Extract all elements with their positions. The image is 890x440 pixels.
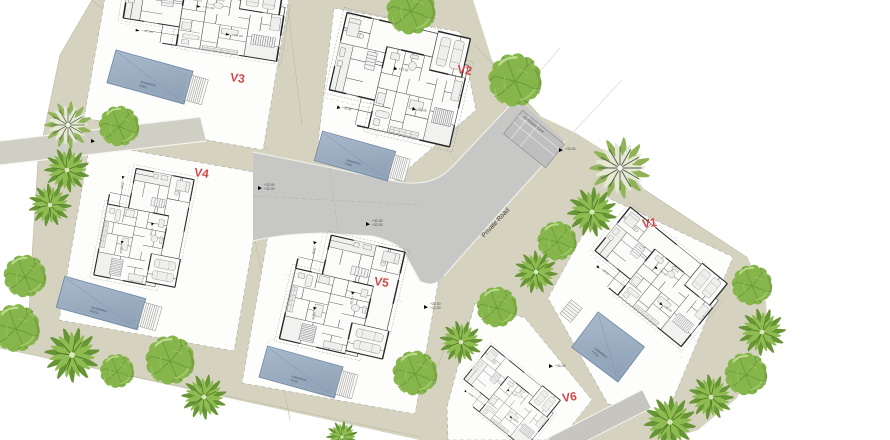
svg-text:V4: V4: [193, 165, 210, 181]
svg-text:+33.00: +33.00: [565, 147, 576, 151]
svg-text:V3: V3: [229, 70, 246, 86]
svg-text:V2: V2: [456, 62, 473, 78]
svg-text:V6: V6: [561, 389, 578, 405]
svg-text:+32.00: +32.00: [264, 187, 275, 191]
svg-text:V5: V5: [373, 274, 390, 290]
svg-text:+32.00: +32.00: [372, 223, 383, 227]
svg-text:V1: V1: [641, 215, 658, 231]
svg-text:+30.45: +30.45: [555, 364, 566, 368]
svg-text:+32.00: +32.00: [430, 306, 441, 310]
